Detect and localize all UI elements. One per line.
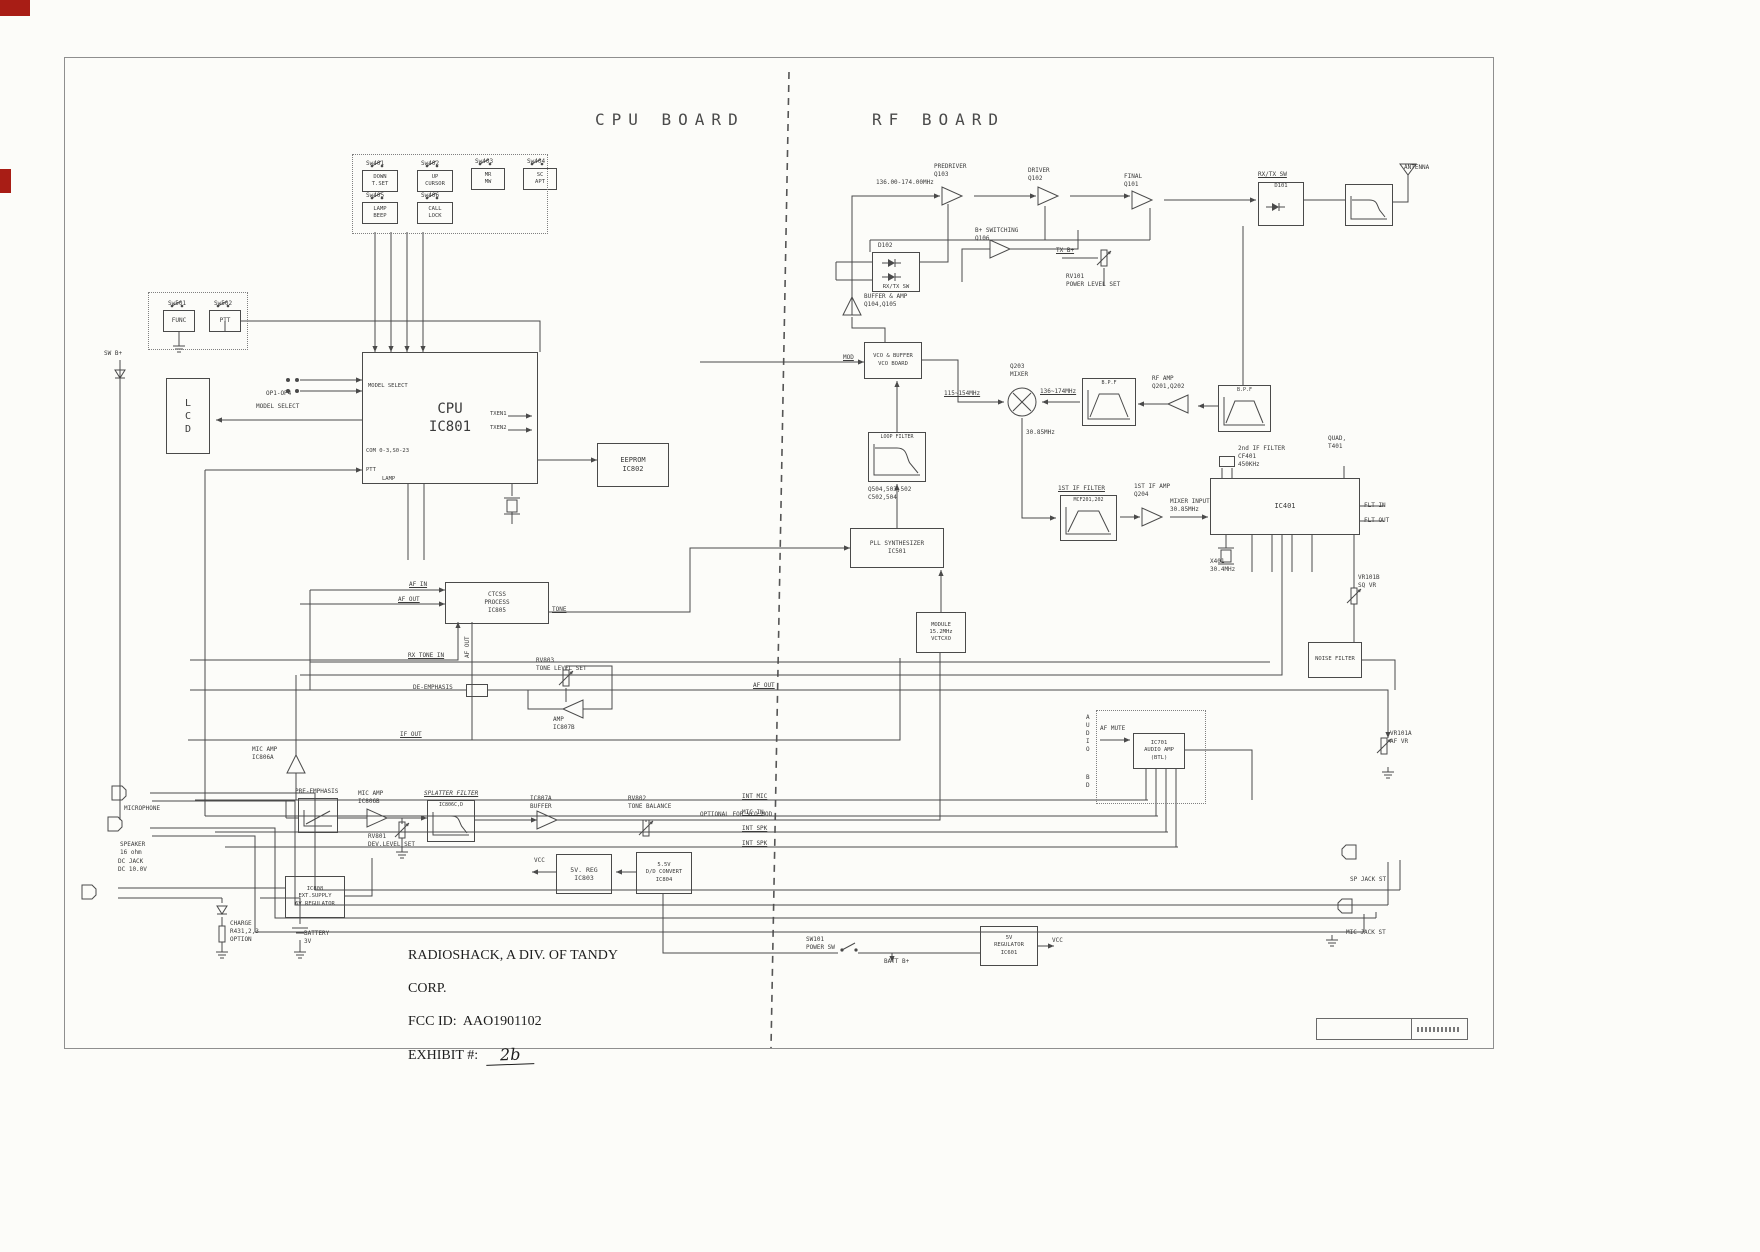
dc-jack	[82, 885, 96, 899]
footer-line1: RADIOSHACK, A DIV. OF TANDY	[408, 948, 618, 963]
rf-amp-q201-q202	[1168, 395, 1188, 413]
wire-30	[528, 690, 563, 709]
cpu-ic801: CPU IC801	[362, 352, 538, 484]
jumper-dot-1	[286, 378, 290, 382]
charge-label: CHARGE R431,2,3 OPTION	[230, 920, 259, 944]
reg-5v-ic803: 5V. REG IC803	[556, 854, 612, 894]
lcd: L C D	[166, 378, 210, 454]
quad-t401-label: QUAD, T401	[1328, 435, 1346, 451]
final-amp	[1132, 191, 1152, 209]
second-if-filter-label: 2nd IF FILTER CF401 450KHz	[1238, 445, 1285, 469]
int-spk-label-1: INT SPK	[742, 825, 767, 833]
ic807a-label: IC807A BUFFER	[530, 795, 552, 811]
arrowhead-122	[531, 817, 537, 822]
arrowhead-7	[216, 417, 222, 422]
af-out-bus-label: AF OUT	[753, 682, 775, 690]
mixer-label: Q203 MIXER	[1010, 363, 1028, 379]
rv802-label: RV802 TONE BALANCE	[628, 795, 671, 811]
int-spk-label-2: INT SPK	[742, 840, 767, 848]
batt-bplus-label: BATT B+	[884, 958, 909, 966]
ctcss-process-ic805: CTCSS PROCESS IC805	[445, 582, 549, 624]
buffer-ic807a	[537, 811, 557, 829]
cpu-pin-txen2: TXEN2	[490, 425, 507, 432]
loop-filter-caption: LOOP FILTER	[868, 434, 926, 441]
mic-amp-ic806a	[287, 755, 305, 773]
mixer-input-label: MIXER INPUT 30.85MHz	[1170, 498, 1210, 514]
sw-bplus-label: SW B+	[104, 350, 122, 358]
rf-amp-label: RF AMP Q201,Q202	[1152, 375, 1185, 391]
wire-57	[852, 317, 885, 342]
tx-freq-label: 136.00-174.00MHz	[876, 179, 934, 187]
first-if-filter-label: 1ST IF FILTER	[1058, 485, 1105, 493]
pll-synthesizer-ic501: PLL SYNTHESIZER IC501	[850, 528, 944, 568]
footer-line2: CORP.	[408, 981, 447, 996]
schematic-wiring	[0, 0, 1760, 1252]
mod-label: MOD	[843, 354, 854, 362]
audio-bd-letters-1: A U D I O	[1086, 714, 1090, 754]
dd-convert-ic804: 5.5V D/D CONVERT IC804	[636, 852, 692, 894]
battery-label: BATTERY 3V	[304, 930, 329, 946]
dc-jack-diode	[217, 906, 227, 914]
predriver-label: PREDRIVER Q103	[934, 163, 967, 179]
microphone-label: MICROPHONE	[124, 805, 160, 813]
noise-filter: NOISE FILTER	[1308, 642, 1362, 678]
arrowhead-40	[1030, 193, 1036, 198]
if-freq-label: 30.85MHz	[1026, 429, 1055, 437]
arrowhead-61	[938, 570, 943, 576]
predriver-amp	[942, 187, 962, 205]
antenna-label: ANTENNA	[1404, 164, 1429, 172]
dc-jack-label: DC JACK DC 10.0V	[118, 858, 147, 874]
mic-in-label: MIC IN	[742, 809, 764, 817]
scanned-schematic-page: CPU BOARD RF BOARD CPU IC801EEPROM IC802…	[0, 0, 1760, 1252]
footer-exhibit-label: EXHIBIT #:	[408, 1048, 478, 1065]
speaker-label: SPEAKER 16 ohm	[120, 841, 145, 857]
first-if-filter-caption: MCF201,202	[1060, 497, 1117, 504]
b-plus-switching-label: B+ SWITCHING Q106	[975, 227, 1018, 243]
x401-if-label: X401 30.4MHz	[1210, 558, 1235, 574]
arrowhead-41	[1124, 193, 1130, 198]
rx-tone-in-label: RX TONE IN	[408, 652, 444, 660]
wire-24	[549, 548, 850, 612]
tone-label: TONE	[552, 606, 566, 614]
2nd-if-component	[1219, 456, 1235, 467]
board-fold-divider	[771, 72, 789, 1048]
vco-buffer: VCO & BUFFER VCO BOARD	[864, 342, 922, 379]
rv101-label: RV101 POWER LEVEL SET	[1066, 273, 1120, 289]
drawing-title-block	[1316, 1018, 1468, 1040]
mic-amp-ic806b	[367, 809, 387, 827]
rx-tx-sw-d101: D101	[1258, 182, 1304, 226]
fcc-footer: RADIOSHACK, A DIV. OF TANDY CORP. FCC ID…	[408, 948, 618, 1065]
arrowhead-62	[1042, 399, 1048, 404]
vcc-left-label: VCC	[534, 857, 545, 865]
vr101b-label: VR101B SQ VR	[1358, 574, 1380, 590]
arrowhead-64	[1138, 401, 1144, 406]
key-cluster-outline	[352, 154, 548, 234]
bpf-rx-2-caption: B.P.F	[1218, 387, 1271, 394]
rx-freq-label: 136~174MHz	[1040, 388, 1076, 396]
driver-label: DRIVER Q102	[1028, 167, 1050, 183]
sw101-power-switch	[842, 943, 855, 950]
de-emphasis-box	[466, 684, 488, 697]
op1-op4-label: OP1-OP4	[266, 390, 291, 398]
mic-jack-label: MIC JACK ST	[1346, 929, 1386, 937]
cpu-pin-model-select: MODEL SELECT	[368, 383, 408, 390]
rv803-label: RV803 TONE LEVEL SET	[536, 657, 587, 673]
mic-jack-st	[1338, 899, 1352, 913]
lpf-tx	[1345, 184, 1393, 226]
cpu-pin-txen1: TXEN1	[490, 411, 507, 418]
flt-out-label: FLT OUT	[1364, 517, 1389, 525]
arrowhead-58	[998, 399, 1004, 404]
int-mic-label: INT MIC	[742, 793, 767, 801]
af-in-label: AF IN	[409, 581, 427, 589]
title-block-divider	[1411, 1019, 1412, 1039]
footer-line3: FCC ID: AAO1901102	[408, 1014, 542, 1029]
sw101-power-switch	[854, 948, 857, 951]
amp-ic807b-label: AMP IC807B	[553, 716, 575, 732]
wire-50	[962, 249, 990, 282]
loop-filter-parts-label: Q504,503,502 C502,504	[868, 486, 911, 502]
mic-amp-a-label: MIC AMP IC806A	[252, 746, 277, 762]
pre-emphasis-label: PRE-EMPHASIS	[295, 788, 338, 796]
cpu-pin-com: COM 0-3,S0-23	[366, 448, 409, 455]
exhibit-number-handwritten: 2b	[486, 1046, 535, 1065]
wire-81	[1362, 660, 1395, 690]
arrowhead-67	[1134, 514, 1140, 519]
ic401: IC401	[1210, 478, 1360, 535]
arrowhead-63	[1050, 515, 1056, 520]
vcc-right-label: VCC	[1052, 937, 1063, 945]
pre-emphasis-filter	[298, 798, 338, 833]
wire-29	[545, 690, 1388, 738]
sp-jack-st	[1342, 845, 1356, 859]
first-if-amp-label: 1ST IF AMP Q204	[1134, 483, 1170, 499]
ic808-regulator: IC808 EXT.SUPPLY 6V REGULATOR	[285, 876, 345, 918]
rx-tx-sw-d102: RX/TX SW	[872, 252, 920, 292]
arrowhead-108	[532, 869, 538, 874]
model-select-label: MODEL SELECT	[256, 403, 299, 411]
driver-amp	[1038, 187, 1058, 205]
vr101a-label: VR101A AF VR	[1390, 730, 1412, 746]
jumper-dot-2	[295, 378, 299, 382]
mic-amp-b-label: MIC AMP IC806B	[358, 790, 383, 806]
rv801-label: RV801 DEV.LEVEL SET	[368, 833, 415, 849]
splatter-filter-caption: IC806C,D	[427, 802, 475, 809]
reg-ic601: 5V REGULATOR IC601	[980, 926, 1038, 966]
flt-in-label: FLT IN	[1364, 502, 1386, 510]
tx-bplus-label: TX B+	[1056, 247, 1074, 255]
arrowhead-59	[894, 381, 899, 387]
arrowhead-65	[1198, 403, 1204, 408]
arrowhead-42	[1250, 197, 1256, 202]
bpf-rx-1-caption: B.P.F	[1082, 380, 1136, 387]
if-out-label: IF OUT	[400, 731, 422, 739]
arrowhead-39	[934, 193, 940, 198]
charge-resistor	[219, 926, 225, 942]
wire-44	[1393, 182, 1408, 202]
rx-tx-sw-label: RX/TX SW	[1258, 171, 1287, 179]
audio-bd-outline	[1096, 710, 1206, 804]
func-ptt-outline	[148, 292, 248, 350]
af-out-label: AF OUT	[398, 596, 420, 604]
cpu-pin-ptt: PTT	[366, 467, 376, 474]
if-amp-q204	[1142, 508, 1162, 526]
af-out-vertical: AF OUT	[464, 636, 472, 658]
x401-cpu-crystal	[507, 500, 517, 512]
final-label: FINAL Q101	[1124, 173, 1142, 189]
audio-bd-letters-2: B D	[1086, 774, 1090, 790]
cpu-pin-lamp: LAMP	[382, 476, 395, 483]
arrowhead-68	[1202, 514, 1208, 519]
buffer-amp-label: BUFFER & AMP Q104,Q105	[864, 293, 907, 309]
sp-jack-label: SP JACK ST	[1350, 876, 1386, 884]
module-vctcxo: MODULE 15.2MHz VCTCXO	[916, 612, 966, 653]
microphone-jack	[112, 786, 126, 800]
wire-53	[920, 204, 948, 262]
de-emphasis-label: DE-EMPHASIS	[413, 684, 453, 692]
arrowhead-109	[616, 869, 622, 874]
speaker-jack	[108, 817, 122, 831]
title-block-smudge	[1417, 1027, 1461, 1032]
lo-freq-label: 115~154MHz	[944, 390, 980, 398]
eeprom-ic802: EEPROM IC802	[597, 443, 669, 487]
splatter-filter-label: SPLATTER FILTER	[424, 790, 478, 798]
sw101-label: SW101 POWER SW	[806, 936, 835, 952]
d102-label: D102	[878, 242, 892, 250]
jumper-dot-4	[295, 389, 299, 393]
